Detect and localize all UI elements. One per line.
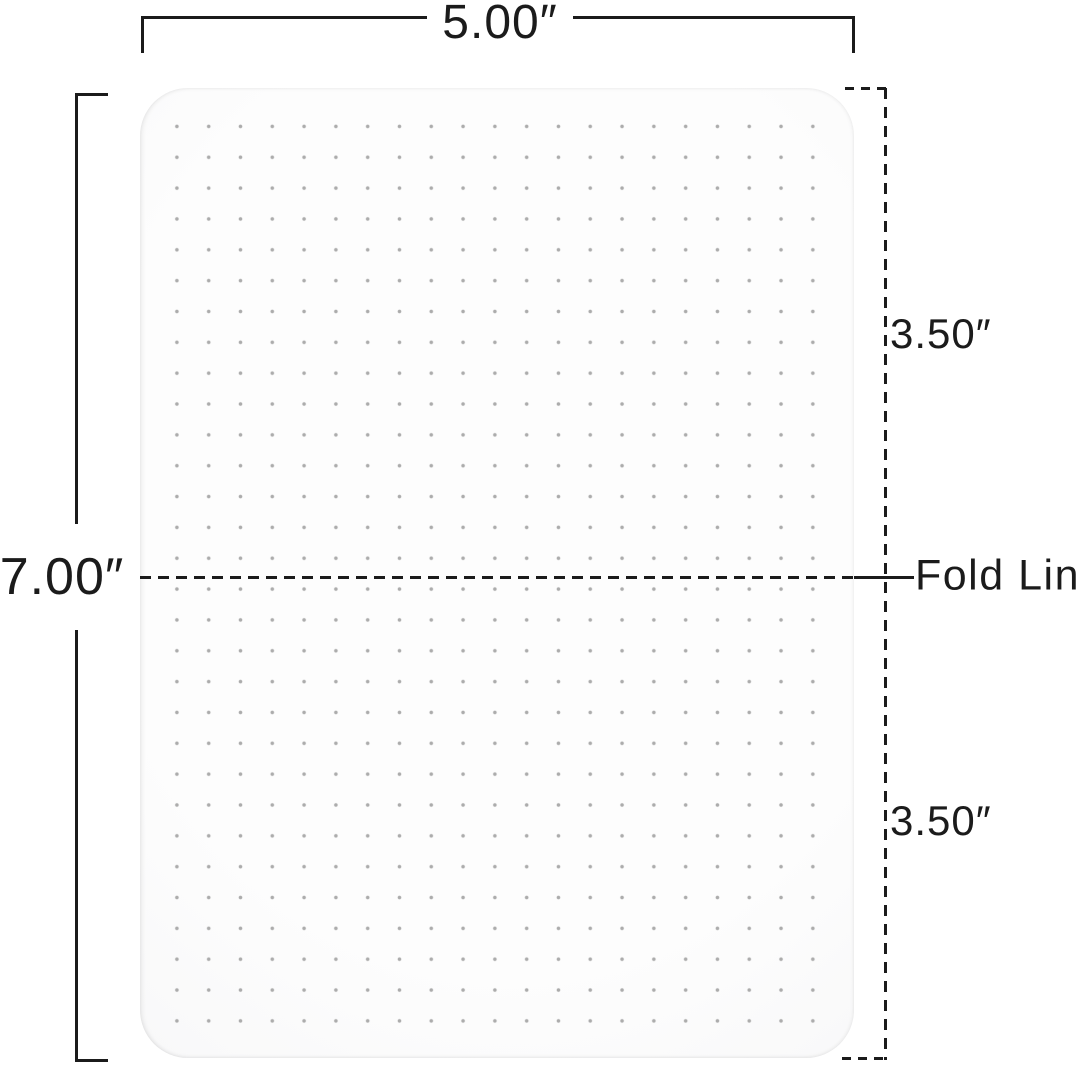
width-dimension-label: 5.00″: [427, 0, 573, 49]
fold-line-label: Fold Line: [915, 552, 1080, 601]
half-dimension-tick-bottom: [842, 1057, 887, 1060]
half-dimension-tick-top: [845, 87, 887, 90]
fold-line-leader: [854, 576, 914, 579]
dimension-diagram: 5.00″ 7.00″ 3.50″ 3.50″ Fold Line: [0, 0, 1080, 1071]
mat-product: [140, 88, 854, 1058]
height-dimension-label: 7.00″: [0, 524, 132, 630]
mat-dot-grid: [161, 111, 829, 1037]
top-half-dimension-label: 3.50″: [890, 310, 992, 358]
fold-line: [140, 576, 854, 579]
bottom-half-dimension-label: 3.50″: [890, 797, 992, 845]
half-dimension-line: [884, 88, 887, 1060]
